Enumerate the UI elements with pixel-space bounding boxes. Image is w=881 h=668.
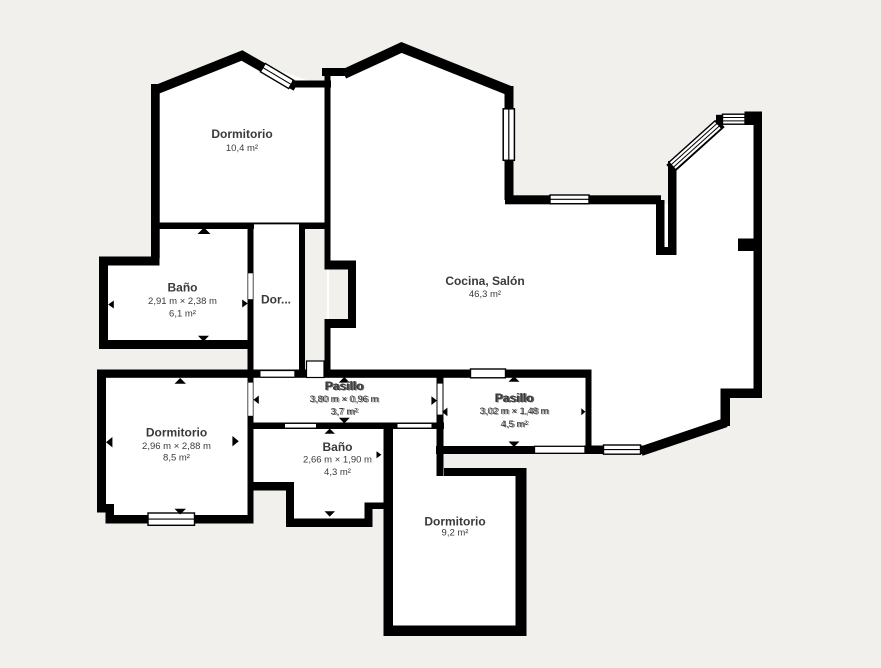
svg-text:2,66 m × 1,90 m: 2,66 m × 1,90 m (303, 455, 372, 466)
svg-text:Dormitorio: Dormitorio (424, 515, 485, 529)
svg-text:9,2 m²: 9,2 m² (442, 528, 469, 539)
svg-text:Baño: Baño (323, 440, 353, 454)
svg-text:3,80 m × 0,96 m: 3,80 m × 0,96 m (310, 394, 379, 405)
svg-text:Dormitorio: Dormitorio (146, 426, 207, 440)
svg-text:3,02 m × 1,48 m: 3,02 m × 1,48 m (480, 406, 549, 417)
svg-text:8,5 m²: 8,5 m² (163, 453, 190, 464)
svg-text:Pasillo: Pasillo (325, 379, 364, 393)
svg-text:Pasillo: Pasillo (495, 391, 534, 405)
svg-text:3,7 m²: 3,7 m² (331, 407, 358, 418)
svg-text:46,3 m²: 46,3 m² (469, 289, 501, 300)
svg-text:Cocina, Salón: Cocina, Salón (445, 274, 524, 288)
svg-text:4,3 m²: 4,3 m² (324, 467, 351, 478)
svg-text:6,1 m²: 6,1 m² (169, 309, 196, 320)
svg-text:2,96 m × 2,88 m: 2,96 m × 2,88 m (142, 441, 211, 452)
svg-text:Baño: Baño (168, 281, 198, 295)
svg-text:4,5 m²: 4,5 m² (501, 419, 528, 430)
svg-text:Dor...: Dor... (261, 293, 291, 307)
svg-text:Dormitorio: Dormitorio (211, 127, 272, 141)
svg-text:2,91 m × 2,38 m: 2,91 m × 2,38 m (148, 296, 217, 307)
svg-text:10,4 m²: 10,4 m² (226, 143, 258, 154)
